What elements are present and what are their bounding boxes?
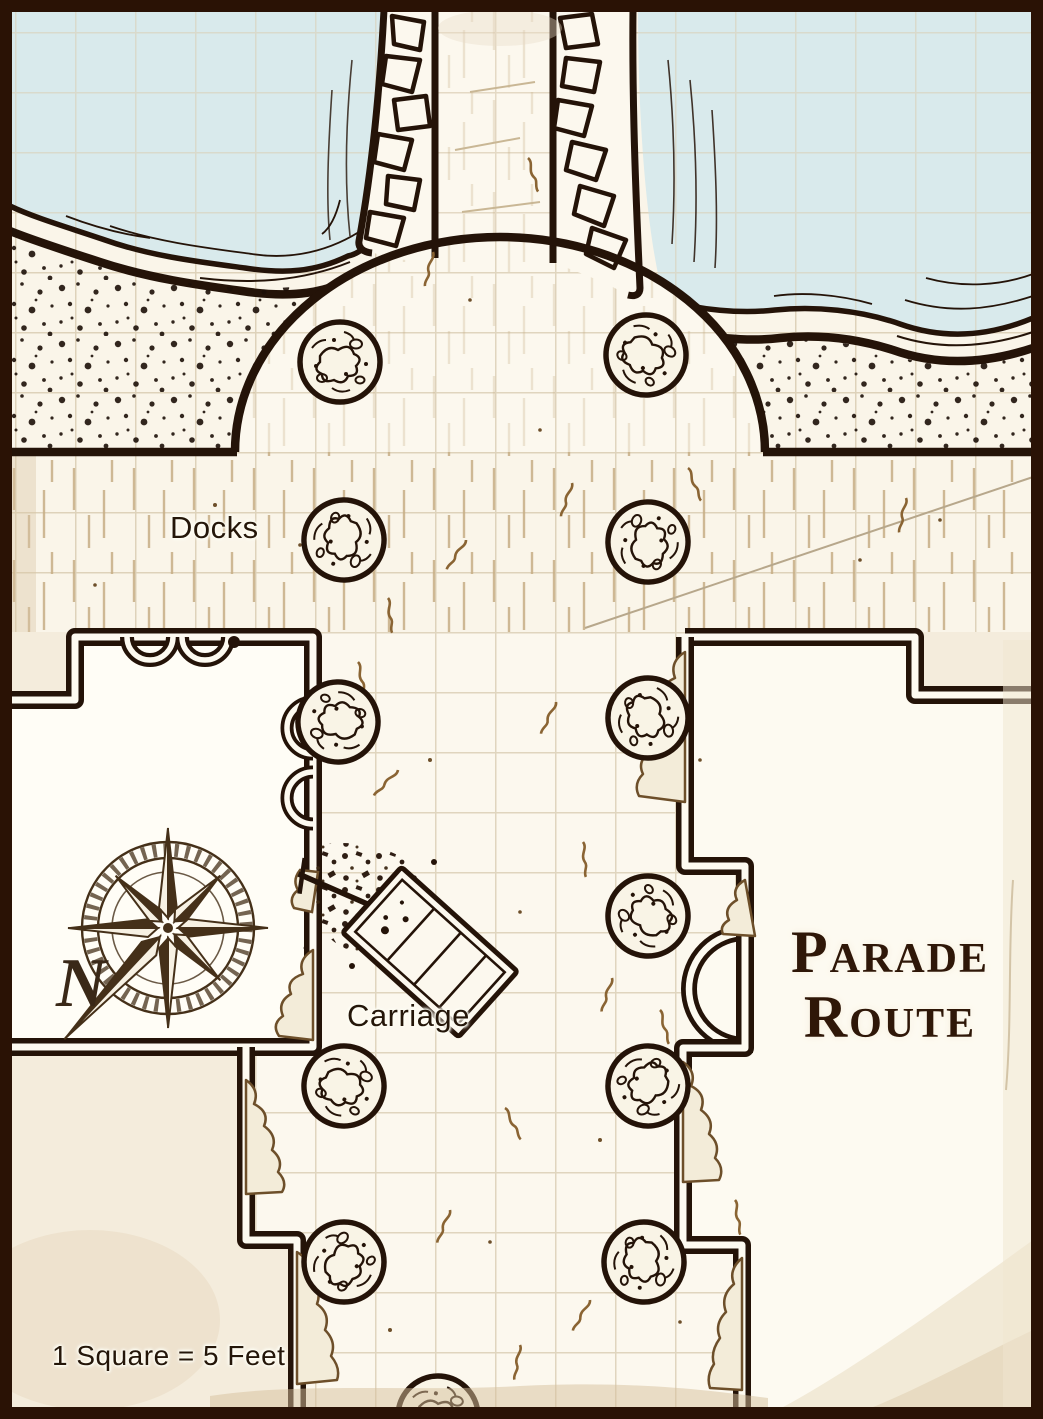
map-title-line1: Parade — [762, 920, 1018, 985]
tree — [300, 322, 380, 402]
scale-note: 1 Square = 5 Feet — [52, 1340, 285, 1372]
map-artwork — [0, 0, 1043, 1419]
map-title: Parade Route — [762, 920, 1018, 1050]
docks-label: Docks — [170, 510, 259, 546]
compass-north-letter: N — [56, 944, 107, 1024]
docks-area — [10, 452, 1033, 632]
carriage-label: Carriage — [347, 998, 470, 1034]
battle-map-page: Docks Carriage 1 Square = 5 Feet Parade … — [0, 0, 1043, 1419]
map-title-line2: Route — [762, 985, 1018, 1050]
